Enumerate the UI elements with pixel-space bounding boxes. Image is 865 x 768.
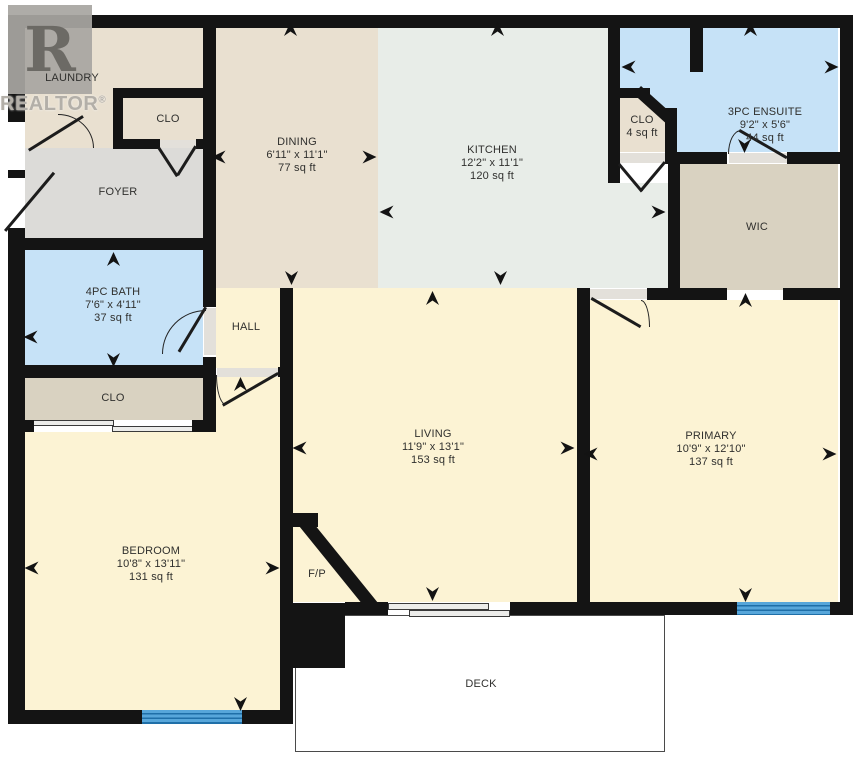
kitchen-clo-area: 4 sq ft — [607, 127, 677, 140]
room-label-hall: HALL — [171, 321, 321, 334]
laundry-name: LAUNDRY — [0, 72, 147, 85]
wall-primary-bottom-corner — [830, 602, 853, 615]
room-label-bedroom: BEDROOM 10'8" x 13'11" 131 sq ft — [76, 545, 226, 584]
wall-clo-bottom-left — [8, 420, 34, 432]
realtor-watermark: REALTOR® — [0, 93, 118, 116]
living-area: 153 sq ft — [358, 454, 508, 467]
room-label-foyer: FOYER — [43, 186, 193, 199]
wall-exterior-left-lower — [8, 228, 25, 723]
room-label-living: LIVING 11'9" x 13'1" 153 sq ft — [358, 428, 508, 467]
wall-bedroom-bottom-left — [8, 710, 142, 724]
bedroom-clo-bypass-door-b — [112, 426, 194, 432]
fireplace-name: F/P — [287, 568, 347, 581]
wall-deck-corner-block — [293, 603, 345, 668]
living-dims: 11'9" x 13'1" — [358, 441, 508, 454]
patio-sliding-door-b — [409, 610, 510, 617]
floor-plan: R REALTOR® LAUNDRY CLO FOYER DINING 6'11… — [0, 0, 865, 768]
bath-name: 4PC BATH — [38, 286, 188, 299]
bedroom-area: 131 sq ft — [76, 571, 226, 584]
primary-name: PRIMARY — [636, 430, 786, 443]
wall-laundry-clo-jamb — [196, 139, 205, 149]
deck-name: DECK — [406, 678, 556, 691]
bedroom-window — [142, 710, 242, 724]
bedroom-name: BEDROOM — [76, 545, 226, 558]
laundry-clo-door-gap — [158, 140, 198, 148]
wall-wic-left — [668, 152, 680, 290]
laundry-clo-name: CLO — [138, 113, 198, 126]
room-label-kitchen-clo: CLO 4 sq ft — [607, 114, 677, 140]
primary-dims: 10'9" x 12'10" — [636, 443, 786, 456]
wall-clo-bottom-right — [192, 420, 216, 432]
room-label-bedroom-clo: CLO — [38, 392, 188, 405]
wall-laundry-clo-bottom — [113, 139, 160, 149]
bedroom-clo-bypass-door-a — [30, 420, 114, 426]
wall-bath-bottom — [8, 365, 216, 378]
wall-primary-bottom-left — [590, 602, 737, 615]
kitchen-clo-name: CLO — [607, 114, 677, 127]
room-label-laundry: LAUNDRY — [0, 72, 147, 85]
room-label-kitchen: KITCHEN 12'2" x 11'1" 120 sq ft — [417, 144, 567, 183]
room-label-bath: 4PC BATH 7'6" x 4'11" 37 sq ft — [38, 286, 188, 325]
living-name: LIVING — [358, 428, 508, 441]
room-label-ensuite: 3PC ENSUITE 9'2" x 5'6" 44 sq ft — [690, 106, 840, 145]
wall-foyer-bottom — [8, 238, 216, 250]
kitchen-dims: 12'2" x 11'1" — [417, 157, 567, 170]
kitchen-passage-floor — [620, 183, 668, 288]
primary-area: 137 sq ft — [636, 456, 786, 469]
kitchen-clo-door-gap — [620, 153, 665, 163]
bath-dims: 7'6" x 4'11" — [38, 299, 188, 312]
kitchen-name: KITCHEN — [417, 144, 567, 157]
wall-primary-top-right — [783, 288, 840, 300]
wall-primary-top-mid — [647, 288, 727, 300]
room-label-fireplace: F/P — [287, 568, 347, 581]
room-label-wic: WIC — [682, 221, 832, 234]
kitchen-area: 120 sq ft — [417, 170, 567, 183]
realtor-watermark-text: REALTOR — [0, 93, 98, 115]
wall-kitchen-ensuite — [608, 15, 620, 183]
primary-door-gap — [590, 289, 647, 299]
patio-sliding-door-a — [388, 603, 489, 610]
ensuite-area: 44 sq ft — [690, 132, 840, 145]
ensuite-name: 3PC ENSUITE — [690, 106, 840, 119]
registered-mark: ® — [98, 94, 106, 105]
room-label-dining: DINING 6'11" x 11'1" 77 sq ft — [222, 136, 372, 175]
primary-window — [737, 602, 832, 615]
bedroom-clo-name: CLO — [38, 392, 188, 405]
wall-ensuite-stub — [690, 15, 703, 72]
dining-dims: 6'11" x 11'1" — [222, 149, 372, 162]
wall-foyer-dining-divider — [203, 15, 216, 307]
bath-area: 37 sq ft — [38, 312, 188, 325]
room-label-primary: PRIMARY 10'9" x 12'10" 137 sq ft — [636, 430, 786, 469]
dining-area: 77 sq ft — [222, 162, 372, 175]
wall-ensuite-bottom-right — [787, 152, 840, 164]
wall-exterior-right — [840, 15, 853, 615]
wall-exterior-top — [8, 15, 853, 28]
bedroom-dims: 10'8" x 13'11" — [76, 558, 226, 571]
wall-entry-jamb — [8, 170, 25, 178]
foyer-name: FOYER — [43, 186, 193, 199]
ensuite-dims: 9'2" x 5'6" — [690, 119, 840, 132]
wall-living-primary — [577, 288, 590, 615]
wall-bedroom-living — [280, 288, 293, 723]
dining-name: DINING — [222, 136, 372, 149]
wall-laundry-clo-top — [113, 88, 205, 98]
wall-bedroom-bottom-right — [242, 710, 293, 724]
room-label-deck: DECK — [406, 678, 556, 691]
wic-name: WIC — [682, 221, 832, 234]
hall-name: HALL — [171, 321, 321, 334]
room-label-laundry-clo: CLO — [138, 113, 198, 126]
